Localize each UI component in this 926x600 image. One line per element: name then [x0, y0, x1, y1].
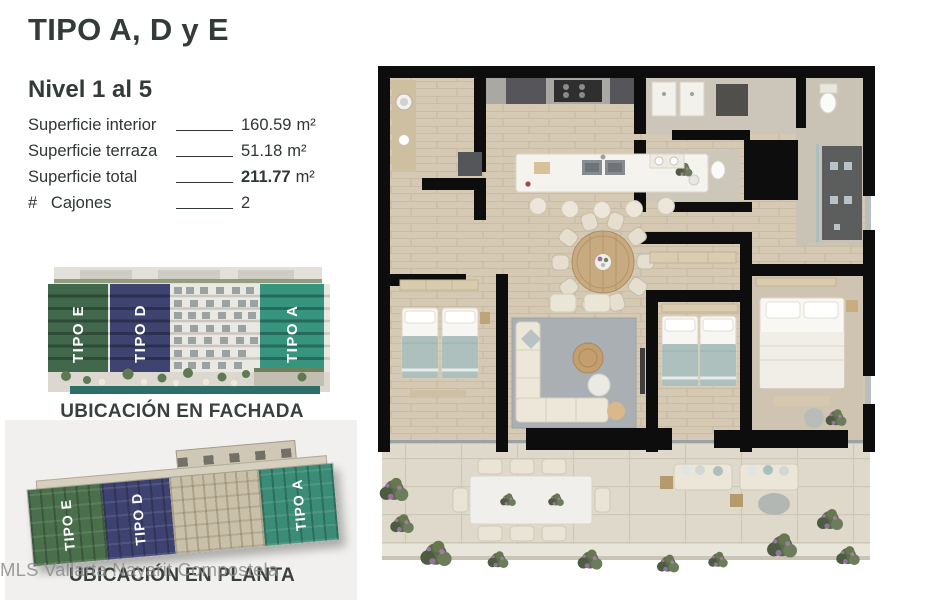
- brochure-page: TIPO A, D y E Nivel 1 al 5 Superficie in…: [0, 0, 926, 600]
- throw-blanket: [804, 408, 824, 428]
- locator-band-tipo-e: TIPO E: [28, 484, 108, 566]
- coffee-table-white: [588, 374, 610, 396]
- locator-label-tipo-e: TIPO E: [57, 498, 77, 551]
- locator-band-tipo-d: TIPO D: [101, 478, 175, 560]
- storage-cabinet: [716, 84, 748, 116]
- facade-rendering: TIPO E TIPO D TIPO A: [40, 262, 336, 398]
- locator-label-tipo-a: TIPO A: [289, 478, 309, 531]
- toilet: [820, 93, 836, 113]
- spec-row-cajones: # Cajones 2: [28, 187, 348, 213]
- spec-value: 211.77: [241, 168, 291, 187]
- vanity-sink: [652, 82, 676, 116]
- pantry-cabinet: [458, 152, 482, 176]
- facade-label-tipo-d: TIPO D: [132, 304, 149, 363]
- master-closet: [756, 278, 836, 286]
- stove: [554, 80, 602, 102]
- outdoor-table: [470, 476, 592, 524]
- armchair: [550, 294, 576, 312]
- laundry-room: [392, 80, 416, 172]
- spec-value: 160.59: [241, 116, 291, 135]
- ottoman: [607, 402, 625, 420]
- watermark: MLS Vallarta Nayarit Compostela: [0, 559, 278, 581]
- twin-bed: [402, 308, 438, 378]
- window-right-1: [865, 196, 871, 230]
- wicker-side-table: [660, 476, 673, 489]
- facade-caption: UBICACIÓN EN FACHADA: [6, 401, 358, 423]
- window-right-2: [865, 376, 871, 404]
- spec-label: Superficie terraza: [28, 142, 176, 161]
- facade-label-tipo-e: TIPO E: [70, 305, 87, 363]
- locator-band-tipo-a: TIPO A: [259, 464, 339, 546]
- spec-connector-line: [176, 156, 233, 157]
- twin-bed: [662, 316, 698, 386]
- spec-row-superficie-terraza: Superficie terraza 51.18 m²: [28, 135, 348, 161]
- twin-bed: [442, 308, 478, 378]
- page-title: TIPO A, D y E: [28, 12, 229, 48]
- spec-row-superficie-total: Superficie total 211.77 m²: [28, 161, 348, 187]
- spec-connector-line: [176, 208, 233, 209]
- spec-unit: m²: [296, 168, 315, 187]
- spec-label: Superficie total: [28, 168, 176, 187]
- nightstand: [480, 312, 490, 324]
- spec-unit: m²: [296, 116, 315, 135]
- twin-bed: [700, 316, 736, 386]
- pendant-light: [689, 175, 699, 185]
- nightstand: [846, 300, 858, 312]
- locator-band-unhighlighted: [169, 470, 265, 554]
- bench: [774, 396, 830, 406]
- level-subtitle: Nivel 1 al 5: [28, 76, 152, 104]
- coffee-table-wood: [573, 343, 603, 373]
- armchair: [584, 294, 610, 312]
- spec-list: Superficie interior 160.59 m² Superficie…: [28, 109, 348, 213]
- vanity-sink: [680, 82, 704, 116]
- tv-panel: [640, 348, 645, 394]
- throw-blanket: [758, 493, 790, 515]
- floor-plan: [378, 66, 875, 588]
- spec-value: 51.18: [241, 142, 282, 161]
- spec-connector-line: [176, 182, 233, 183]
- dresser: [400, 280, 478, 290]
- bench: [410, 390, 466, 398]
- locator-label-tipo-d: TIPO D: [128, 492, 149, 546]
- spec-connector-line: [176, 130, 233, 131]
- spec-value: 2: [241, 194, 250, 213]
- wicker-side-table: [730, 494, 743, 507]
- spec-unit: m²: [287, 142, 306, 161]
- king-bed: [760, 298, 844, 388]
- shower: [816, 144, 862, 242]
- toilet: [711, 161, 725, 179]
- spec-label: Superficie interior: [28, 116, 176, 135]
- hall-closet: [650, 252, 736, 263]
- closet: [662, 304, 738, 312]
- spec-label: # Cajones: [28, 194, 176, 213]
- facade-label-tipo-a: TIPO A: [284, 305, 301, 363]
- facade-location-figure: TIPO E TIPO D TIPO A: [40, 262, 336, 398]
- spec-row-superficie-interior: Superficie interior 160.59 m²: [28, 109, 348, 135]
